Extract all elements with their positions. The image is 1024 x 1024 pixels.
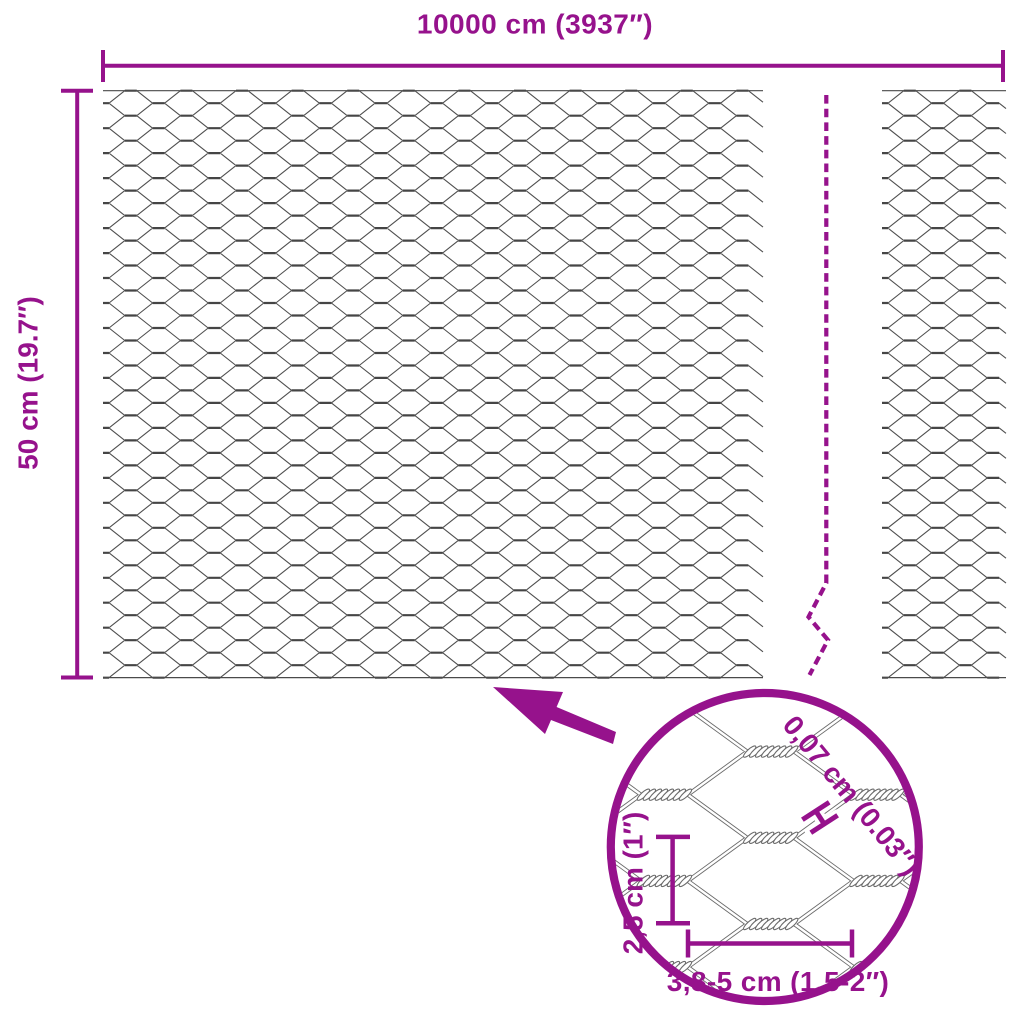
svg-text:10000 cm (3937″): 10000 cm (3937″) bbox=[417, 9, 653, 40]
svg-text:3,8-5 cm (1.5-2″): 3,8-5 cm (1.5-2″) bbox=[667, 966, 890, 997]
svg-text:50 cm (19.7″): 50 cm (19.7″) bbox=[13, 296, 44, 470]
svg-text:2,5 cm (1″): 2,5 cm (1″) bbox=[618, 812, 649, 955]
